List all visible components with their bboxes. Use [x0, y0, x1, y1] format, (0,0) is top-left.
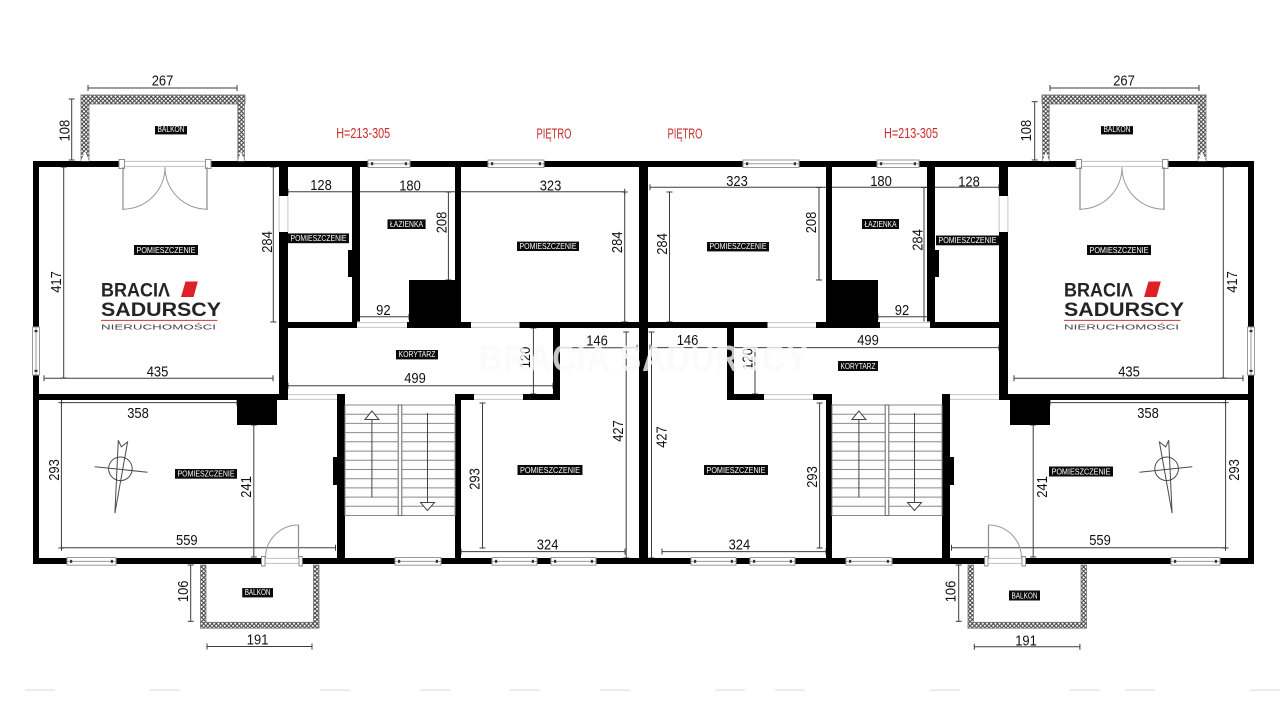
svg-text:92: 92: [376, 302, 391, 319]
svg-text:435: 435: [1118, 364, 1140, 381]
svg-text:427: 427: [610, 420, 627, 442]
svg-text:POMIESZCZENIE: POMIESZCZENIE: [707, 466, 766, 475]
svg-text:NIERUCHOMOŚCI: NIERUCHOMOŚCI: [1064, 323, 1179, 332]
svg-text:559: 559: [176, 532, 198, 549]
svg-text:180: 180: [870, 173, 892, 190]
svg-text:208: 208: [803, 212, 820, 234]
svg-text:92: 92: [895, 302, 910, 319]
svg-text:267: 267: [152, 72, 174, 89]
svg-text:293: 293: [46, 459, 63, 481]
svg-text:358: 358: [1137, 405, 1159, 422]
svg-text:323: 323: [726, 173, 748, 190]
svg-text:293: 293: [466, 468, 483, 490]
svg-text:323: 323: [540, 177, 562, 194]
svg-text:108: 108: [1018, 120, 1035, 142]
svg-text:ŁAZIENKA: ŁAZIENKA: [390, 220, 424, 229]
svg-text:417: 417: [48, 271, 65, 293]
svg-text:191: 191: [247, 631, 269, 648]
svg-text:ŁAZIENKA: ŁAZIENKA: [865, 220, 898, 229]
svg-text:559: 559: [1089, 532, 1111, 549]
svg-text:417: 417: [1224, 271, 1241, 293]
svg-text:POMIESZCZENIE: POMIESZCZENIE: [137, 246, 196, 255]
svg-text:427: 427: [653, 426, 670, 448]
svg-text:128: 128: [958, 173, 980, 190]
svg-text:BRACIA SADURSCY: BRACIA SADURSCY: [479, 338, 809, 379]
svg-text:499: 499: [857, 332, 879, 349]
svg-text:POMIESZCZENIE: POMIESZCZENIE: [710, 242, 767, 251]
svg-text:H=213-305: H=213-305: [336, 126, 390, 142]
svg-text:PIĘTRO: PIĘTRO: [537, 127, 572, 143]
svg-text:106: 106: [175, 581, 192, 603]
svg-text:BALKON: BALKON: [1012, 591, 1038, 600]
svg-text:KORYTARZ: KORYTARZ: [399, 350, 436, 359]
svg-text:SADURSCY: SADURSCY: [101, 299, 221, 321]
svg-text:POMIESZCZENIE: POMIESZCZENIE: [291, 234, 347, 243]
svg-text:284: 284: [654, 233, 671, 255]
svg-text:435: 435: [147, 364, 169, 381]
svg-text:POMIESZCZENIE: POMIESZCZENIE: [520, 466, 580, 475]
svg-text:284: 284: [259, 231, 276, 253]
svg-text:BALKON: BALKON: [245, 588, 271, 597]
svg-text:KORYTARZ: KORYTARZ: [841, 362, 876, 371]
svg-text:284: 284: [609, 232, 626, 254]
svg-text:POMIESZCZENIE: POMIESZCZENIE: [520, 242, 577, 251]
svg-text:293: 293: [804, 466, 821, 488]
svg-text:208: 208: [434, 212, 451, 234]
svg-text:SADURSCY: SADURSCY: [1064, 299, 1184, 321]
svg-text:267: 267: [1113, 72, 1135, 89]
svg-text:POMIESZCZENIE: POMIESZCZENIE: [1052, 467, 1111, 476]
svg-text:BALKON: BALKON: [1104, 125, 1131, 134]
svg-text:128: 128: [310, 177, 332, 194]
svg-text:NIERUCHOMOŚCI: NIERUCHOMOŚCI: [101, 323, 216, 332]
svg-text:358: 358: [127, 405, 149, 422]
svg-text:POMIESZCZENIE: POMIESZCZENIE: [178, 470, 235, 479]
svg-text:BALKON: BALKON: [158, 125, 185, 134]
svg-text:241: 241: [1034, 476, 1051, 498]
svg-text:PIĘTRO: PIĘTRO: [668, 127, 703, 143]
svg-text:POMIESZCZENIE: POMIESZCZENIE: [1090, 246, 1149, 255]
svg-text:499: 499: [404, 370, 426, 387]
svg-text:324: 324: [729, 537, 751, 554]
svg-text:106: 106: [942, 581, 959, 603]
svg-text:191: 191: [1015, 632, 1037, 649]
svg-text:108: 108: [56, 120, 73, 142]
svg-text:293: 293: [1226, 459, 1243, 481]
svg-text:284: 284: [909, 229, 926, 251]
svg-text:POMIESZCZENIE: POMIESZCZENIE: [939, 236, 997, 245]
svg-text:324: 324: [537, 537, 559, 554]
svg-text:241: 241: [238, 476, 255, 498]
svg-text:H=213-305: H=213-305: [884, 126, 938, 142]
svg-text:180: 180: [399, 178, 421, 195]
